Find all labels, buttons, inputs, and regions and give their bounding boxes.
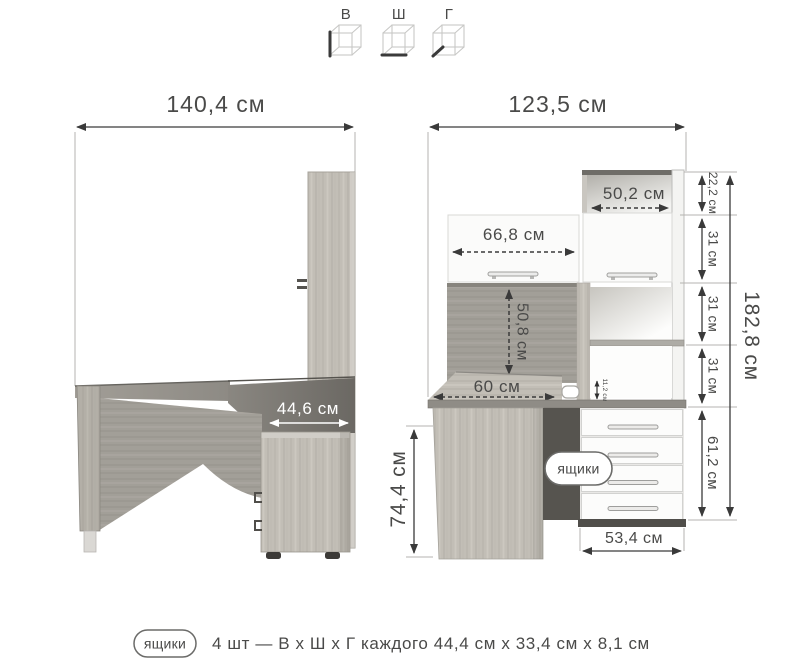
side-pedestal [255,432,350,559]
desk-height-label-group: 74,4 см [387,450,410,527]
total-height-label: 182,8 см [740,291,763,381]
height-segment-label-3: 31 см [706,358,721,394]
front-desk-panel [433,408,543,559]
dimension-legend: В Ш Г [330,6,464,56]
side-left-leg [84,531,96,552]
gap-label-group: 11,2 см [601,378,608,401]
width-axis-label: Ш [392,6,406,23]
diagram-canvas: В Ш Г 140,4 см [0,0,800,667]
height-segment-label-4: 61,2 см [704,436,721,490]
height-cube-icon [330,25,361,56]
desk-height-label: 74,4 см [387,450,410,527]
height-dimension-stack: 22,2 см 31 см 31 см 31 см 61,2 см 182,8 … [680,172,763,520]
height-segment-label-1: 31 см [706,231,721,267]
door-width-label: 66,8 см [483,225,545,244]
side-overall-width-label: 140,4 см [166,91,265,117]
side-left-panel [77,386,100,552]
depth-axis-label: Г [445,6,454,23]
front-view-drawing: 123,5 см 50,2 см 66,8 см [387,91,763,559]
clearance-label-group: 50,8 см [514,303,531,361]
side-modesty-panel [98,398,262,531]
panel-hook-detail [297,279,307,282]
drawer-front [582,410,683,436]
drawer-plinth [578,519,686,527]
right-side-panel [672,170,684,404]
middle-shelf [590,340,684,346]
pedestal-width-label: 53,4 см [605,530,663,547]
front-overall-width-label: 123,5 см [508,91,607,117]
side-pedestal-foot [266,552,281,559]
back-panel [447,283,577,383]
height-axis-label: В [341,6,351,23]
height-segment-label-0: 22,2 см [706,172,720,214]
depth-cube-icon [433,25,464,56]
gap-height-label: 11,2 см [601,378,608,401]
footnote-text: 4 шт — В х Ш х Г каждого 44,4 см х 33,4 … [212,634,650,653]
panel-hook-detail [297,286,307,289]
drawers-badge-label: ящики [557,461,599,477]
furniture-dimension-diagram: В Ш Г 140,4 см [0,0,800,667]
desk-depth-label: 60 см [474,377,521,396]
side-view-drawing: 140,4 см 44,6 см [75,91,355,559]
back-clearance-label: 50,8 см [514,303,531,361]
right-door [583,213,672,282]
desk-front-band [428,400,686,408]
side-pedestal-foot [325,552,340,559]
side-unit-depth-label: 44,6 см [277,399,339,418]
footnote-badge-label: ящики [144,636,186,652]
open-compartment-upper [590,287,672,340]
width-cube-icon [382,25,414,55]
drawers-footnote: ящики 4 шт — В х Ш х Г каждого 44,4 см х… [134,630,650,657]
computer-mouse [562,386,579,398]
niche-width-label: 50,2 см [603,184,665,203]
height-segment-label-2: 31 см [706,296,721,332]
center-divider [577,283,590,400]
drawers-badge: ящики [545,452,612,485]
